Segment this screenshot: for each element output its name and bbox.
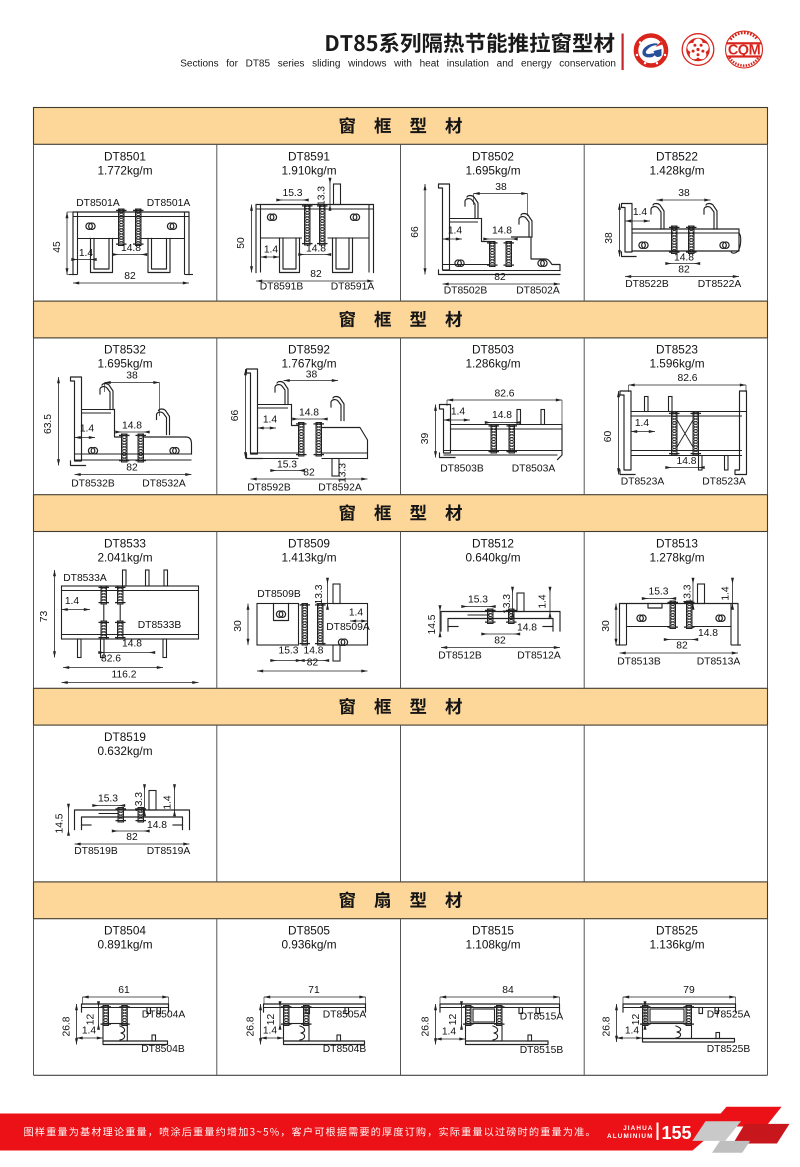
svg-text:DT8513: DT8513 xyxy=(656,537,698,551)
svg-text:73: 73 xyxy=(39,611,50,623)
svg-text:14.8: 14.8 xyxy=(517,623,537,634)
svg-text:82: 82 xyxy=(126,463,138,474)
svg-text:12: 12 xyxy=(86,1014,97,1026)
svg-text:14.8: 14.8 xyxy=(303,646,323,657)
svg-text:13.3: 13.3 xyxy=(317,186,328,206)
svg-text:45: 45 xyxy=(52,241,63,253)
svg-text:DT8501A: DT8501A xyxy=(147,198,191,209)
svg-text:155: 155 xyxy=(662,1123,692,1143)
svg-text:0.640kg/m: 0.640kg/m xyxy=(465,550,520,564)
svg-text:14.8: 14.8 xyxy=(147,820,167,831)
svg-text:DT8525B: DT8525B xyxy=(707,1044,751,1055)
svg-text:DT8505A: DT8505A xyxy=(323,1010,367,1021)
svg-text:DT8533A: DT8533A xyxy=(63,573,107,584)
svg-text:79: 79 xyxy=(683,985,695,996)
svg-text:13.3: 13.3 xyxy=(338,463,349,483)
svg-text:DT8515: DT8515 xyxy=(472,924,514,938)
svg-text:66: 66 xyxy=(410,226,421,238)
svg-text:1.4: 1.4 xyxy=(80,424,95,435)
svg-text:82: 82 xyxy=(494,636,506,647)
svg-text:14.8: 14.8 xyxy=(121,243,141,254)
svg-text:DT8592: DT8592 xyxy=(288,343,330,357)
svg-text:DT8533B: DT8533B xyxy=(138,620,182,631)
svg-text:14.8: 14.8 xyxy=(122,421,142,432)
svg-text:1.596kg/m: 1.596kg/m xyxy=(649,356,704,370)
svg-text:1.108kg/m: 1.108kg/m xyxy=(465,937,520,951)
svg-text:116.2: 116.2 xyxy=(111,670,136,681)
svg-text:38: 38 xyxy=(495,182,507,193)
svg-text:DT8523A: DT8523A xyxy=(621,477,665,488)
svg-text:DT8519: DT8519 xyxy=(104,730,146,744)
svg-text:14.8: 14.8 xyxy=(676,456,696,467)
svg-text:1.4: 1.4 xyxy=(163,795,174,810)
svg-text:82: 82 xyxy=(303,468,315,479)
svg-text:63.5: 63.5 xyxy=(43,414,54,434)
svg-text:1.695kg/m: 1.695kg/m xyxy=(97,356,152,370)
svg-text:1.286kg/m: 1.286kg/m xyxy=(465,356,520,370)
svg-text:15.3: 15.3 xyxy=(648,587,668,598)
svg-text:DT8512B: DT8512B xyxy=(438,651,482,662)
svg-text:14.8: 14.8 xyxy=(492,226,512,237)
svg-text:1.4: 1.4 xyxy=(635,418,650,429)
svg-text:1.4: 1.4 xyxy=(721,586,732,601)
svg-text:38: 38 xyxy=(306,370,318,381)
svg-text:DT8504B: DT8504B xyxy=(141,1044,185,1055)
svg-text:Sections for DT85 series slidi: Sections for DT85 series sliding windows… xyxy=(180,59,616,70)
svg-text:0.891kg/m: 0.891kg/m xyxy=(97,937,152,951)
svg-text:DT8501: DT8501 xyxy=(104,150,146,164)
svg-text:1.4: 1.4 xyxy=(264,245,279,256)
svg-text:14.8: 14.8 xyxy=(674,253,694,264)
svg-text:1.4: 1.4 xyxy=(448,226,463,237)
svg-text:12: 12 xyxy=(448,1014,459,1026)
svg-text:71: 71 xyxy=(308,985,320,996)
svg-text:1.4: 1.4 xyxy=(65,596,80,607)
svg-text:DT8523: DT8523 xyxy=(656,343,698,357)
svg-text:39: 39 xyxy=(420,433,431,445)
svg-text:DT8509A: DT8509A xyxy=(326,622,370,633)
svg-text:DT8504B: DT8504B xyxy=(323,1044,367,1055)
svg-text:14.8: 14.8 xyxy=(122,639,142,650)
svg-text:30: 30 xyxy=(233,620,244,632)
svg-text:12: 12 xyxy=(631,1014,642,1026)
svg-text:26.8: 26.8 xyxy=(602,1016,613,1036)
svg-text:82.6: 82.6 xyxy=(677,373,697,384)
svg-text:14.5: 14.5 xyxy=(427,614,438,634)
svg-text:66: 66 xyxy=(230,410,241,422)
svg-text:2.041kg/m: 2.041kg/m xyxy=(97,550,152,564)
svg-text:82: 82 xyxy=(678,265,690,276)
svg-text:DT8512A: DT8512A xyxy=(517,651,561,662)
svg-text:38: 38 xyxy=(126,371,138,382)
svg-text:82: 82 xyxy=(126,832,138,843)
svg-text:DT8525A: DT8525A xyxy=(707,1010,751,1021)
svg-text:1.4: 1.4 xyxy=(625,1026,640,1037)
svg-text:15.3: 15.3 xyxy=(282,188,302,199)
svg-text:DT8532: DT8532 xyxy=(104,343,146,357)
svg-text:1.4: 1.4 xyxy=(263,415,278,426)
svg-text:DT8513A: DT8513A xyxy=(697,657,741,668)
svg-text:38: 38 xyxy=(678,188,690,199)
svg-text:14.8: 14.8 xyxy=(698,628,718,639)
svg-text:15.3: 15.3 xyxy=(278,646,298,657)
svg-text:DT8523A: DT8523A xyxy=(702,477,746,488)
svg-text:1.278kg/m: 1.278kg/m xyxy=(649,550,704,564)
svg-text:DT8503: DT8503 xyxy=(472,343,514,357)
svg-text:82: 82 xyxy=(124,271,136,282)
svg-text:0.936kg/m: 0.936kg/m xyxy=(281,937,336,951)
svg-text:DT8522B: DT8522B xyxy=(625,279,669,290)
svg-text:DT8591: DT8591 xyxy=(288,150,330,164)
svg-text:DT8512: DT8512 xyxy=(472,537,514,551)
svg-text:82.6: 82.6 xyxy=(101,654,121,665)
svg-text:DT8525: DT8525 xyxy=(656,924,698,938)
svg-text:1.4: 1.4 xyxy=(633,207,648,218)
svg-text:15.3: 15.3 xyxy=(98,794,118,805)
svg-text:DT8504: DT8504 xyxy=(104,924,146,938)
svg-text:DT8515A: DT8515A xyxy=(520,1012,564,1023)
svg-text:CQM: CQM xyxy=(728,43,761,59)
svg-text:DT8533: DT8533 xyxy=(104,537,146,551)
svg-text:DT8532B: DT8532B xyxy=(71,479,115,490)
svg-text:DT8591B: DT8591B xyxy=(260,282,304,293)
svg-text:15.3: 15.3 xyxy=(468,595,488,606)
svg-text:14.5: 14.5 xyxy=(55,813,66,833)
svg-text:DT8502A: DT8502A xyxy=(516,286,560,297)
svg-text:1.4: 1.4 xyxy=(349,608,364,619)
svg-text:60: 60 xyxy=(603,431,614,443)
svg-text:1.4: 1.4 xyxy=(263,1026,278,1037)
svg-text:26.8: 26.8 xyxy=(62,1016,73,1036)
svg-text:1.4: 1.4 xyxy=(451,407,466,418)
svg-text:ALUMINIUM: ALUMINIUM xyxy=(607,1133,653,1140)
svg-text:1.413kg/m: 1.413kg/m xyxy=(281,550,336,564)
svg-text:1.772kg/m: 1.772kg/m xyxy=(97,163,152,177)
svg-text:DT8503A: DT8503A xyxy=(512,464,556,475)
svg-text:DT8505: DT8505 xyxy=(288,924,330,938)
svg-text:82: 82 xyxy=(494,272,506,283)
svg-text:DT8509B: DT8509B xyxy=(257,589,301,600)
svg-text:82: 82 xyxy=(307,658,319,669)
svg-text:DT8502B: DT8502B xyxy=(444,286,488,297)
svg-text:DT8592A: DT8592A xyxy=(318,483,362,494)
svg-text:1.4: 1.4 xyxy=(442,1027,457,1038)
svg-text:12: 12 xyxy=(266,1014,277,1026)
svg-text:82: 82 xyxy=(676,641,688,652)
svg-text:DT8502: DT8502 xyxy=(472,150,514,164)
svg-text:DT8504A: DT8504A xyxy=(142,1010,186,1021)
svg-text:61: 61 xyxy=(118,985,130,996)
svg-text:82.6: 82.6 xyxy=(494,389,514,400)
svg-text:14.8: 14.8 xyxy=(306,244,326,255)
svg-text:1.4: 1.4 xyxy=(82,1026,97,1037)
svg-text:14.8: 14.8 xyxy=(299,408,319,419)
svg-text:30: 30 xyxy=(601,620,612,632)
svg-text:13.3: 13.3 xyxy=(314,584,325,604)
svg-text:DT8591A: DT8591A xyxy=(331,282,375,293)
svg-text:DT8515B: DT8515B xyxy=(520,1045,564,1056)
svg-text:26.8: 26.8 xyxy=(246,1016,257,1036)
svg-text:JIAHUA: JIAHUA xyxy=(623,1125,653,1132)
svg-text:82: 82 xyxy=(310,269,322,280)
svg-text:DT8519B: DT8519B xyxy=(74,846,118,857)
svg-text:DT8513B: DT8513B xyxy=(617,657,661,668)
svg-text:1.428kg/m: 1.428kg/m xyxy=(649,163,704,177)
svg-text:1.136kg/m: 1.136kg/m xyxy=(649,937,704,951)
svg-text:14.8: 14.8 xyxy=(492,410,512,421)
svg-text:DT8522: DT8522 xyxy=(656,150,698,164)
svg-text:DT8592B: DT8592B xyxy=(247,483,291,494)
svg-text:DT8501A: DT8501A xyxy=(76,198,120,209)
svg-text:0.632kg/m: 0.632kg/m xyxy=(97,744,152,758)
svg-text:1.767kg/m: 1.767kg/m xyxy=(281,356,336,370)
svg-text:1.695kg/m: 1.695kg/m xyxy=(465,163,520,177)
svg-text:15.3: 15.3 xyxy=(277,460,297,471)
svg-text:1.4: 1.4 xyxy=(538,594,549,609)
svg-text:DT8522A: DT8522A xyxy=(698,279,742,290)
svg-text:1.910kg/m: 1.910kg/m xyxy=(281,163,336,177)
svg-text:84: 84 xyxy=(502,985,514,996)
svg-text:DT8532A: DT8532A xyxy=(142,479,186,490)
svg-text:38: 38 xyxy=(604,232,615,244)
svg-text:DT8509: DT8509 xyxy=(288,537,330,551)
svg-text:1.4: 1.4 xyxy=(79,248,94,259)
svg-text:50: 50 xyxy=(236,237,247,249)
svg-text:26.8: 26.8 xyxy=(421,1016,432,1036)
svg-text:DT8503B: DT8503B xyxy=(440,464,484,475)
svg-text:DT8519A: DT8519A xyxy=(147,846,191,857)
